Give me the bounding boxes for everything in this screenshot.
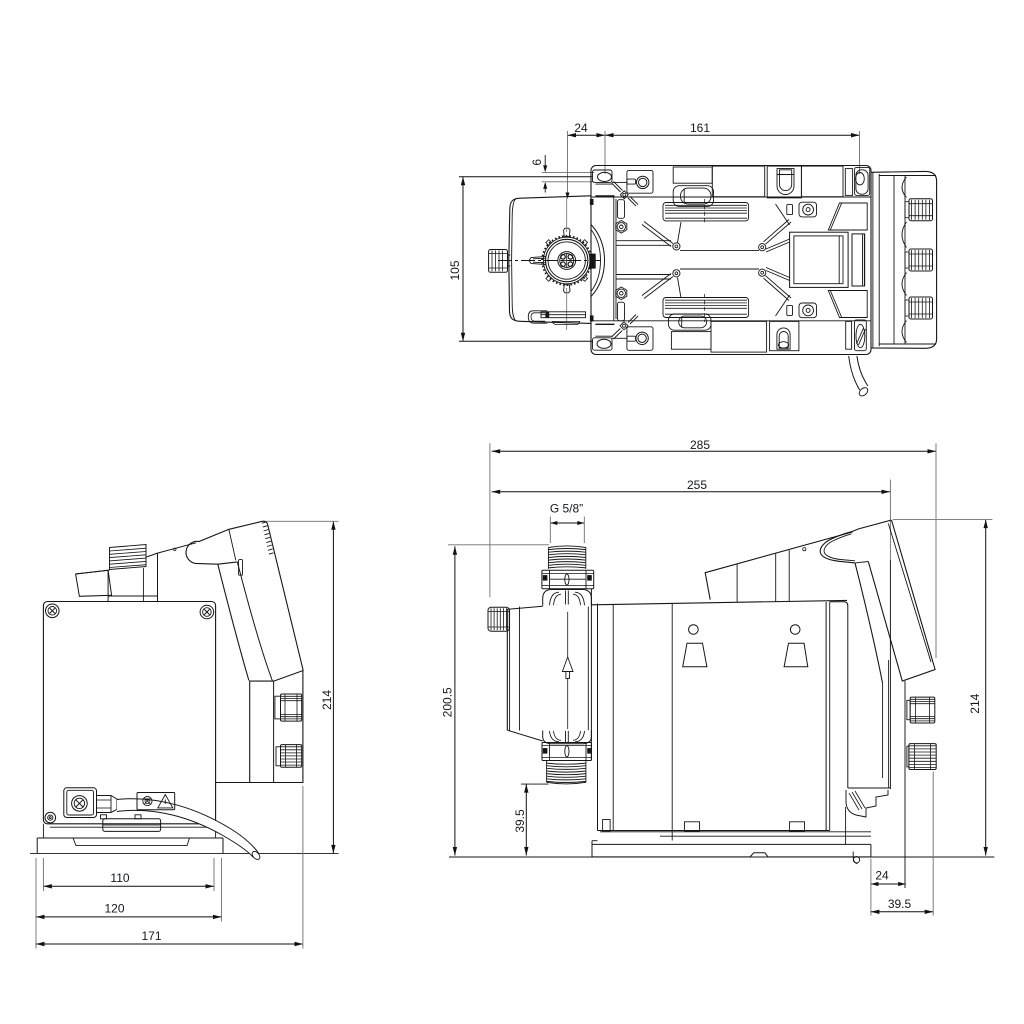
svg-text:285: 285 bbox=[690, 438, 710, 452]
svg-text:24: 24 bbox=[875, 869, 889, 883]
svg-text:24: 24 bbox=[574, 121, 588, 135]
svg-text:6: 6 bbox=[530, 159, 544, 166]
svg-text:120: 120 bbox=[104, 902, 124, 916]
svg-text:200.5: 200.5 bbox=[441, 687, 455, 717]
svg-text:255: 255 bbox=[687, 478, 707, 492]
svg-text:105: 105 bbox=[448, 260, 462, 280]
svg-text:161: 161 bbox=[690, 121, 710, 135]
svg-text:G 5/8”: G 5/8” bbox=[550, 502, 583, 516]
svg-text:39.5: 39.5 bbox=[888, 897, 912, 911]
svg-text:214: 214 bbox=[968, 693, 982, 713]
svg-text:214: 214 bbox=[320, 690, 334, 710]
svg-text:171: 171 bbox=[141, 929, 161, 943]
svg-text:39.5: 39.5 bbox=[513, 809, 527, 833]
svg-text:110: 110 bbox=[110, 871, 129, 885]
